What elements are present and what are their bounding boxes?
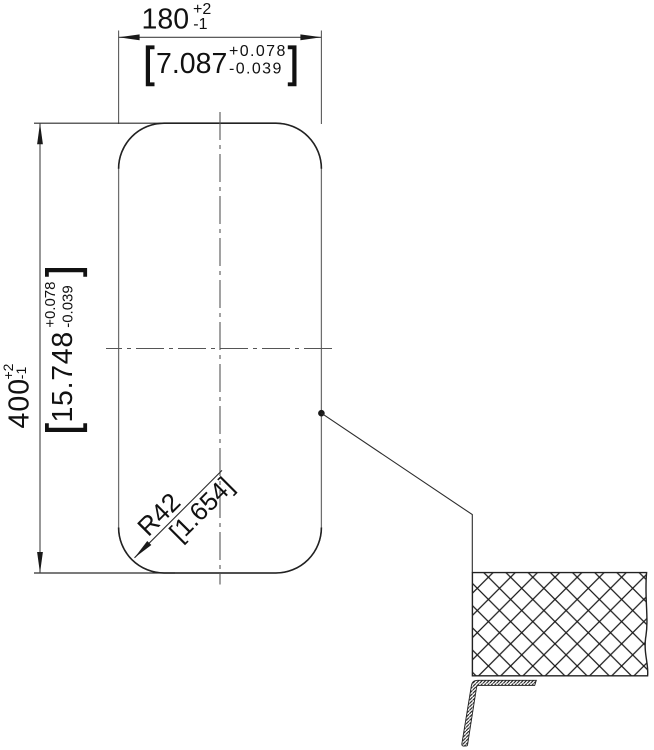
svg-text:180: 180: [142, 4, 190, 36]
svg-text:-0.039: -0.039: [60, 285, 77, 328]
svg-text:+0.078: +0.078: [229, 43, 287, 60]
svg-text:15.748: 15.748: [47, 331, 79, 422]
svg-text:-0.039: -0.039: [229, 61, 283, 78]
svg-text:400: 400: [3, 378, 35, 429]
svg-text:-1: -1: [193, 16, 207, 33]
svg-text:+0.078: +0.078: [42, 282, 59, 328]
svg-text:-1: -1: [13, 367, 29, 380]
svg-text:7.087: 7.087: [156, 48, 227, 80]
